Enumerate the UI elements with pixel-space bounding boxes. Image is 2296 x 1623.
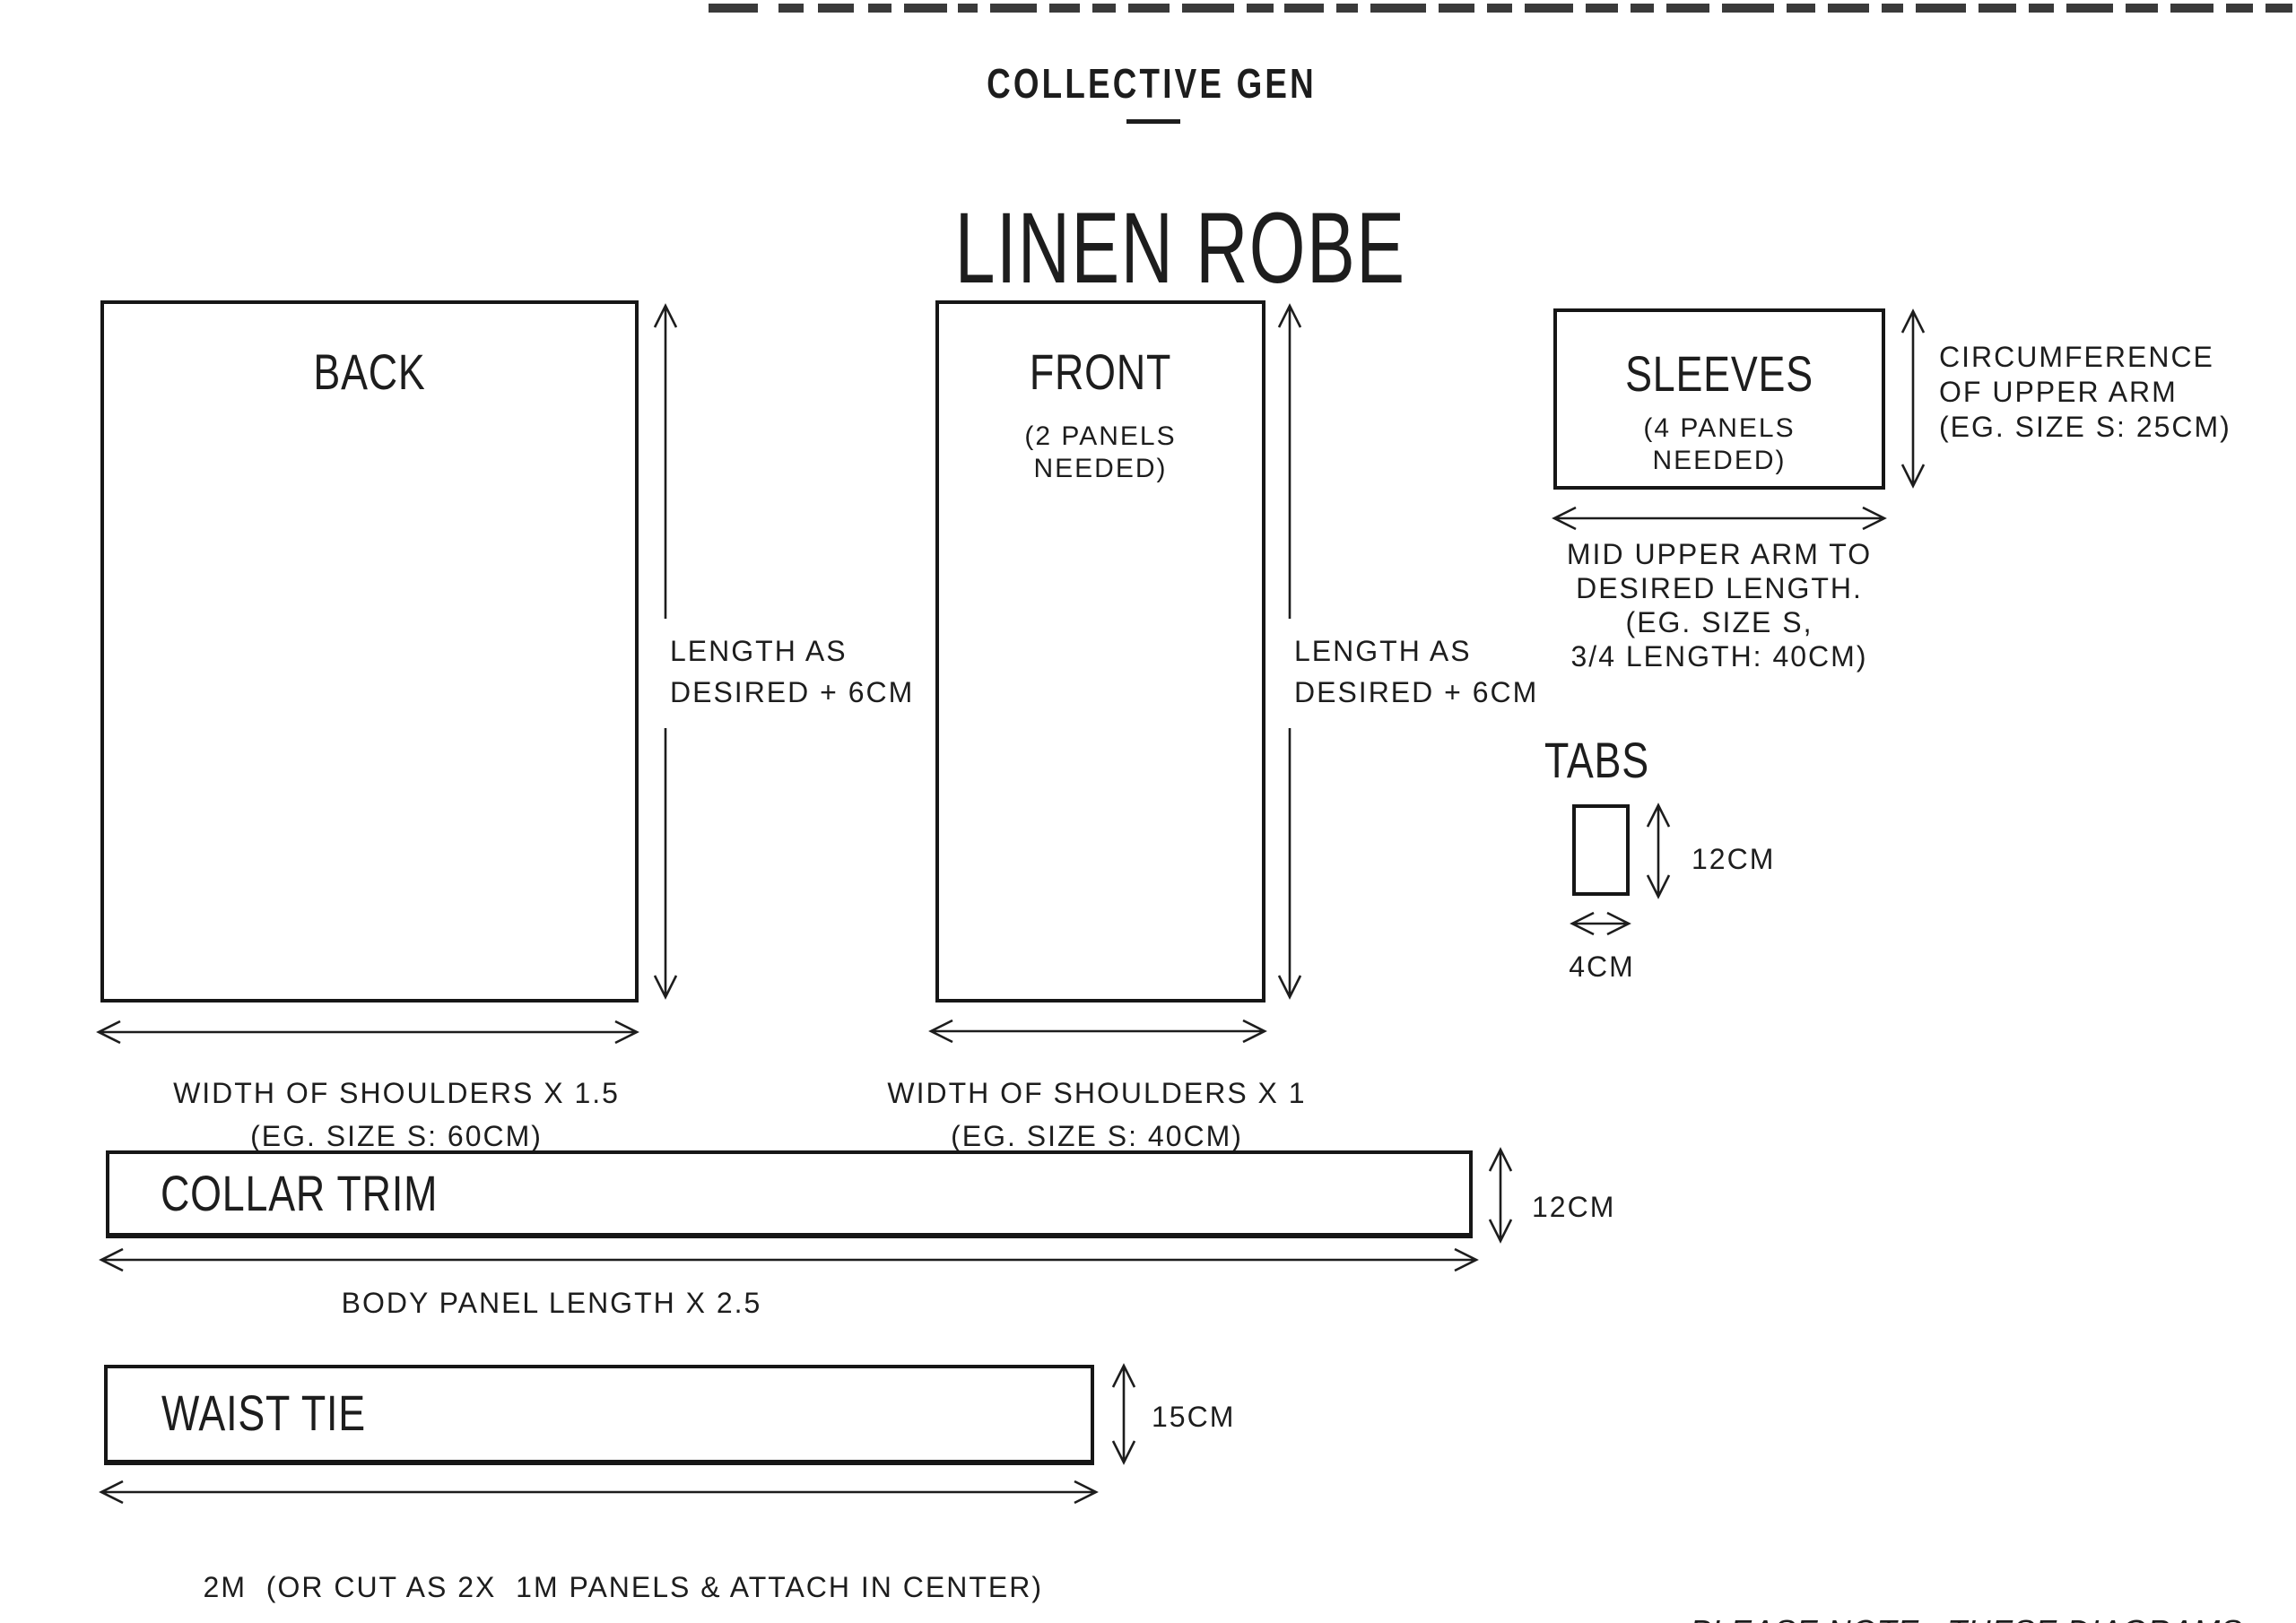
edge-artifact-dash [1049, 4, 1080, 13]
edge-artifact-dash [1828, 4, 1869, 13]
tabs-width-label: 4CM [1569, 946, 1635, 987]
edge-artifact-dash [1128, 4, 1170, 13]
tab-outline [1572, 804, 1630, 896]
sleeves-length-arrow [1538, 502, 1900, 534]
edge-artifact-dash [1092, 4, 1116, 13]
back-length-label: LENGTH AS DESIRED + 6CM [670, 630, 914, 713]
edge-artifact-dash [2066, 4, 2113, 13]
edge-artifact-dash [990, 4, 1037, 13]
edge-artifact-dash [1787, 4, 1815, 13]
waist-length-arrow [85, 1476, 1112, 1508]
edge-artifact-dash [1666, 4, 1709, 13]
collar-length-label: BODY PANEL LENGTH X 2.5 [342, 1282, 762, 1324]
sleeves-length-label: MID UPPER ARM TO DESIRED LENGTH. (EG. SI… [1567, 537, 1872, 673]
front-length-arrow-bottom [1274, 712, 1306, 1013]
front-length-arrow-top [1274, 290, 1306, 635]
tabs-width-arrow [1556, 907, 1645, 940]
collar-height-label: 12CM [1532, 1186, 1615, 1228]
edge-artifact-dash [1631, 4, 1654, 13]
edge-artifact-dash [1916, 4, 1966, 13]
edge-artifact-dash [2266, 4, 2292, 13]
waist-height-label: 15CM [1152, 1396, 1235, 1437]
back-length-arrow-bottom [649, 712, 682, 1013]
edge-artifact-dash [1370, 4, 1426, 13]
tabs-height-arrow [1642, 789, 1674, 913]
collar-height-arrow [1484, 1133, 1517, 1257]
tabs-heading: TABS [1544, 731, 1675, 789]
linen-robe-diagram-page: COLLECTIVE GEN LINEN ROBE BACK LENGTH AS… [0, 0, 2296, 1623]
edge-artifact-dash [904, 4, 947, 13]
front-length-label: LENGTH AS DESIRED + 6CM [1294, 630, 1538, 713]
sleeves-panels-needed-label: (4 PANELS NEEDED) [1643, 412, 1795, 477]
edge-artifact-dash [2029, 4, 2054, 13]
back-panel-outline [100, 300, 639, 1002]
sleeves-circumference-arrow [1897, 295, 1929, 502]
sleeves-circumference-label: CIRCUMFERENCE OF UPPER ARM (EG. SIZE S: … [1939, 340, 2231, 445]
edge-artifact-dash [1586, 4, 1618, 13]
edge-artifact-dash [709, 4, 758, 13]
tabs-height-label: 12CM [1692, 838, 1775, 880]
edge-artifact-dash [1247, 4, 1274, 13]
front-panel-outline [935, 300, 1265, 1002]
waist-tie-label: WAIST TIE [161, 1384, 417, 1442]
brand-logo: COLLECTIVE GEN [945, 59, 1358, 108]
edge-artifact-dash [1439, 4, 1474, 13]
back-length-arrow-top [649, 290, 682, 635]
page-title: LINEN ROBE [867, 190, 1493, 306]
edge-artifact-dash [958, 4, 978, 13]
scale-disclaimer-note: PLEASE NOTE: THESE DIAGRAMS ARE INDICATI… [1690, 1520, 2296, 1623]
front-panel-label: FRONT [1012, 343, 1189, 401]
edge-artifact-dash [1336, 4, 1358, 13]
edge-artifact-dash [1182, 4, 1234, 13]
edge-artifact-dash [2126, 4, 2158, 13]
edge-artifact-dash [1487, 4, 1512, 13]
edge-artifact-dash [2226, 4, 2253, 13]
edge-artifact-dash [868, 4, 891, 13]
edge-artifact-dash [778, 4, 804, 13]
logo-underline [1126, 119, 1180, 124]
edge-artifact-dash [1979, 4, 2016, 13]
edge-artifact-dash [1525, 4, 1573, 13]
waist-height-arrow [1108, 1350, 1140, 1479]
back-width-label: WIDTH OF SHOULDERS X 1.5 (EG. SIZE S: 60… [173, 1072, 620, 1158]
front-panels-needed-label: (2 PANELS NEEDED) [1024, 421, 1176, 485]
front-width-arrow [915, 1015, 1281, 1047]
edge-artifact-dash [1722, 4, 1774, 13]
edge-artifact-dash [818, 4, 854, 13]
edge-artifact-dash [1882, 4, 1903, 13]
collar-trim-label: COLLAR TRIM [161, 1164, 507, 1222]
collar-length-arrow [85, 1244, 1492, 1276]
back-panel-label: BACK [300, 343, 440, 401]
back-width-arrow [83, 1016, 653, 1048]
sleeves-panel-label: SLEEVES [1602, 344, 1837, 403]
edge-artifact-dash [2170, 4, 2213, 13]
waist-length-label: 2M (OR CUT AS 2X 1M PANELS & ATTACH IN C… [164, 1525, 1043, 1623]
edge-artifact-dash [1284, 4, 1324, 13]
front-width-label: WIDTH OF SHOULDERS X 1 (EG. SIZE S: 40CM… [887, 1072, 1306, 1158]
